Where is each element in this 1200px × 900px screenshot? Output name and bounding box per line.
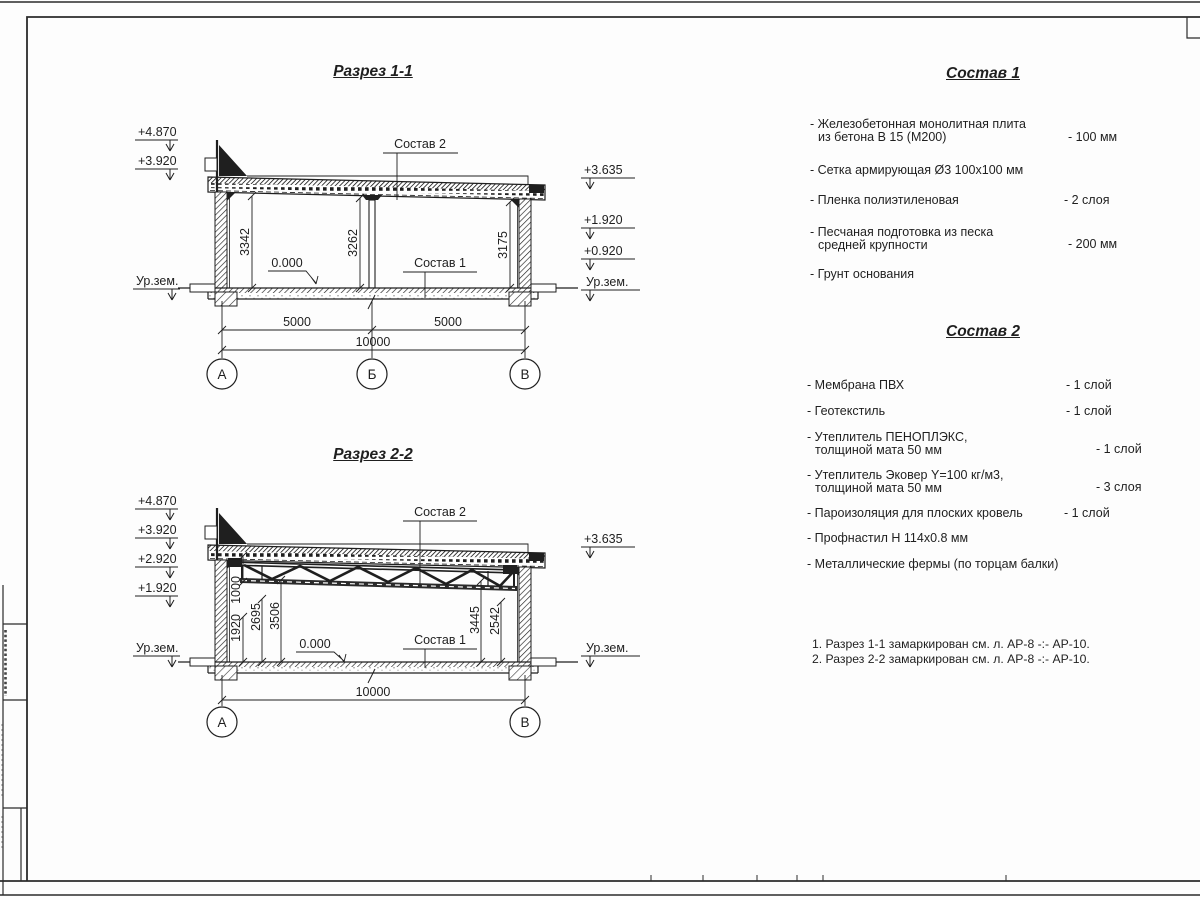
list-item-value: - 1 слой	[1066, 378, 1112, 392]
s1-elev-4870: +4.870	[138, 125, 177, 139]
s2-wall-left	[215, 560, 227, 662]
s1-column	[369, 200, 375, 288]
list-item: - Песчаная подготовка из песка	[810, 225, 993, 239]
list-item: - Профнастил Н 114х0.8 мм	[807, 531, 968, 545]
s1-column-capital	[362, 195, 382, 200]
note-line: 1. Разрез 1-1 замаркирован см. л. АР-8 -…	[812, 637, 1090, 651]
s1-callout-sostav2: Состав 2	[394, 137, 446, 151]
s2-elev-1920: +1.920	[138, 581, 177, 595]
list-item: - Металлические фермы (по торцам балки)	[807, 557, 1058, 571]
s1-elev-3635: +3.635	[584, 163, 623, 177]
sostav-2-heading: Состав 2	[923, 323, 1043, 341]
s1-wall-left	[215, 192, 227, 288]
s2-axis-a: А	[217, 715, 226, 730]
list-item: - Утеплитель ПЕНОПЛЭКС,	[807, 430, 967, 444]
list-item-value: - 1 слой	[1064, 506, 1110, 520]
list-item-value: - 1 слой	[1066, 404, 1112, 418]
sheet-frame	[0, 2, 1200, 895]
s1-corbel-left	[227, 192, 236, 201]
list-item-value: - 3 слоя	[1096, 480, 1141, 494]
s1-dim-10000: 10000	[356, 335, 391, 349]
frame-corner-box	[1187, 17, 1200, 38]
s1-bottom-dims	[218, 301, 529, 358]
s1-elev-1920: +1.920	[584, 213, 623, 227]
s2-foundation-left	[215, 666, 237, 680]
s1-parapet-box	[205, 158, 217, 171]
sostav-1-heading: Состав 1	[923, 65, 1043, 83]
s2-elev-2920: +2.920	[138, 552, 177, 566]
s2-dim-3445: 3445	[468, 606, 482, 634]
s2-foundation-right	[509, 666, 531, 680]
list-item-value: - 1 слой	[1096, 442, 1142, 456]
s2-ground-right: Ур.зем.	[586, 641, 628, 655]
s2-roof-end-cap	[529, 553, 544, 561]
list-item: - Железобетонная монолитная плита	[810, 117, 1026, 131]
s2-parapet-box	[205, 526, 217, 539]
s1-elev-0920: +0.920	[584, 244, 623, 258]
s1-axis-v: В	[520, 367, 529, 382]
list-item: - Утеплитель Эковер Y=100 кг/м3,	[807, 468, 1003, 482]
s2-footing-step-right	[531, 658, 556, 666]
s2-elev-4870: +4.870	[138, 494, 177, 508]
list-item: - Геотекстиль	[807, 404, 885, 418]
s2-dim-1920: 1920	[229, 614, 243, 642]
list-item-line2: средней крупности	[818, 238, 928, 252]
s1-elevation-marks: +4.870 +3.920 Ур.зем. +3.635 +1.920 +0.9…	[133, 125, 640, 301]
s2-elev-3920: +3.920	[138, 523, 177, 537]
section-2-2-drawing: 1000 1920 2695 3506 3445 2542 Состав 2 С…	[133, 494, 640, 737]
s1-vertical-dim-lines	[248, 192, 514, 292]
section-1-title: Разрез 1-1	[303, 63, 443, 81]
s1-dim-3262: 3262	[346, 229, 360, 257]
s1-parapet-flag	[219, 145, 247, 176]
s1-axis-a: А	[217, 367, 226, 382]
list-item: - Сетка армирующая Ø3 100х100 мм	[810, 163, 1023, 177]
list-item-value: - 2 слоя	[1064, 193, 1109, 207]
s1-footing-step-right	[531, 284, 556, 292]
s2-floor-slab	[208, 662, 538, 667]
s2-wall-right	[519, 567, 531, 662]
s1-footing-step-left	[190, 284, 215, 292]
section-1-1-drawing: 3342 3262 3175 Состав 2 Состав 1 0.000 5…	[133, 125, 640, 389]
note-line: 2. Разрез 2-2 замаркирован см. л. АР-8 -…	[812, 652, 1090, 666]
list-item-value: - 100 мм	[1068, 130, 1117, 144]
list-item: - Пароизоляция для плоских кровель	[807, 506, 1023, 520]
list-item-line2: из бетона В 15 (М200)	[818, 130, 946, 144]
s1-zero-level: 0.000	[271, 256, 302, 270]
s2-dim-1000: 1000	[229, 576, 243, 604]
s1-floor-slab	[208, 288, 538, 293]
s1-axis-b: Б	[368, 367, 377, 382]
s2-dim-2542: 2542	[488, 607, 502, 635]
inner-frame	[27, 17, 1200, 881]
s1-foundation-right	[509, 292, 531, 306]
s1-dim-3175: 3175	[496, 231, 510, 259]
list-item: - Мембрана ПВХ	[807, 378, 904, 392]
s2-axis-bubbles: А В	[207, 707, 540, 737]
s1-axis-bubbles: А Б В	[207, 359, 540, 389]
s2-dim-3506: 3506	[268, 602, 282, 630]
drawing-sheet: 3342 3262 3175 Состав 2 Состав 1 0.000 5…	[0, 0, 1200, 900]
section-2-title: Разрез 2-2	[303, 446, 443, 464]
s2-callout-sostav1: Состав 1	[414, 633, 466, 647]
s1-wall-right	[519, 199, 531, 288]
s1-structure	[178, 140, 578, 309]
list-item-value: - 200 мм	[1068, 237, 1117, 251]
list-item: - Пленка полиэтиленовая	[810, 193, 959, 207]
s1-ground-right: Ур.зем.	[586, 275, 628, 289]
list-item-line2: толщиной мата 50 мм	[815, 443, 942, 457]
s1-roof-end-cap	[529, 185, 544, 193]
s2-dimensions: 1000 1920 2695 3506 3445 2542 Состав 2 С…	[218, 505, 529, 706]
s2-elev-3635: +3.635	[584, 532, 623, 546]
s2-axis-v: В	[520, 715, 529, 730]
list-item: - Грунт основания	[810, 267, 914, 281]
s2-parapet-flag	[219, 513, 247, 544]
s1-elev-3920: +3.920	[138, 154, 177, 168]
s1-callout-sostav1: Состав 1	[414, 256, 466, 270]
s1-dim-3342: 3342	[238, 228, 252, 256]
s2-ground-left: Ур.зем.	[136, 641, 178, 655]
s2-footing-step-left	[190, 658, 215, 666]
s2-dim-2695: 2695	[249, 603, 263, 631]
s2-dim-10000: 10000	[356, 685, 391, 699]
s1-dim-5000-left: 5000	[283, 315, 311, 329]
s1-foundation-left	[215, 292, 237, 306]
s2-zero-level: 0.000	[299, 637, 330, 651]
s1-dim-5000-right: 5000	[434, 315, 462, 329]
list-item-line2: толщиной мата 50 мм	[815, 481, 942, 495]
s2-callout-sostav2: Состав 2	[414, 505, 466, 519]
s1-ground-left: Ур.зем.	[136, 274, 178, 288]
